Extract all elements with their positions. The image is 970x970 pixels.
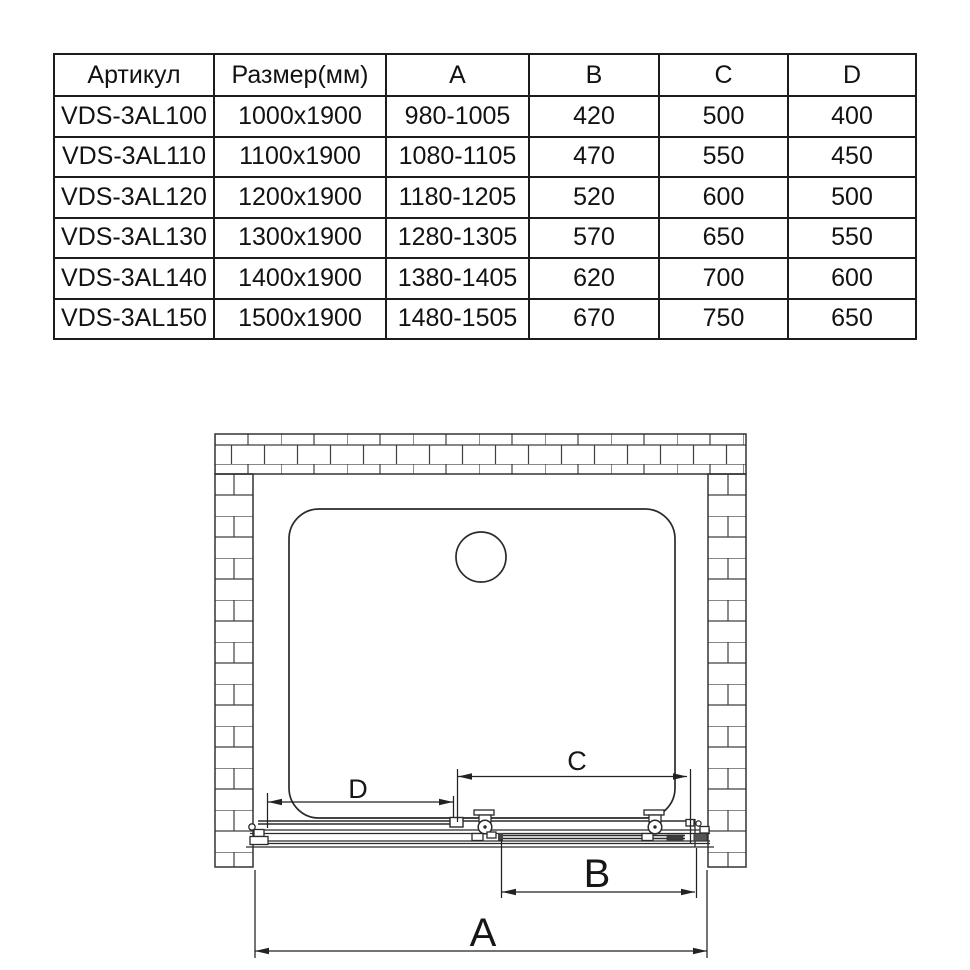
wall-profile-right (694, 819, 709, 847)
roller-stop (487, 832, 496, 838)
tray-outline (289, 509, 675, 818)
profile-body (700, 827, 709, 834)
label-a: A (470, 911, 497, 955)
fixed-panel-glass (258, 821, 695, 824)
door-glass (502, 836, 685, 839)
roller-left (472, 810, 496, 841)
profile-body (254, 830, 264, 837)
door-edge-cap (498, 833, 503, 841)
label-d: D (348, 774, 368, 804)
installation-diagram: D C B A (0, 0, 970, 970)
bottom-rail (246, 841, 714, 847)
door-assembly (246, 810, 714, 847)
door-seal-block (667, 835, 683, 840)
roller-axle (483, 825, 486, 828)
profile-foot (250, 837, 268, 845)
wall-left (215, 474, 253, 867)
shower-tray (289, 509, 675, 818)
profile-foot (694, 834, 707, 842)
dimension-labels: D C B A (348, 746, 610, 955)
roller-bracket (644, 810, 664, 815)
drain-circle (456, 532, 506, 582)
roller-axle (653, 825, 656, 828)
roller-foot (472, 834, 483, 841)
label-c: C (567, 746, 587, 776)
roller-bracket (474, 810, 494, 815)
profile-pin (696, 821, 701, 826)
wall-top (215, 434, 746, 474)
wall-right (708, 474, 746, 867)
spec-sheet: Артикул Размер(мм) A B C D VDS-3AL100 10… (0, 0, 970, 970)
roller-foot (642, 834, 653, 841)
fixed-panel-bracket (450, 818, 463, 828)
label-b: B (584, 852, 611, 896)
